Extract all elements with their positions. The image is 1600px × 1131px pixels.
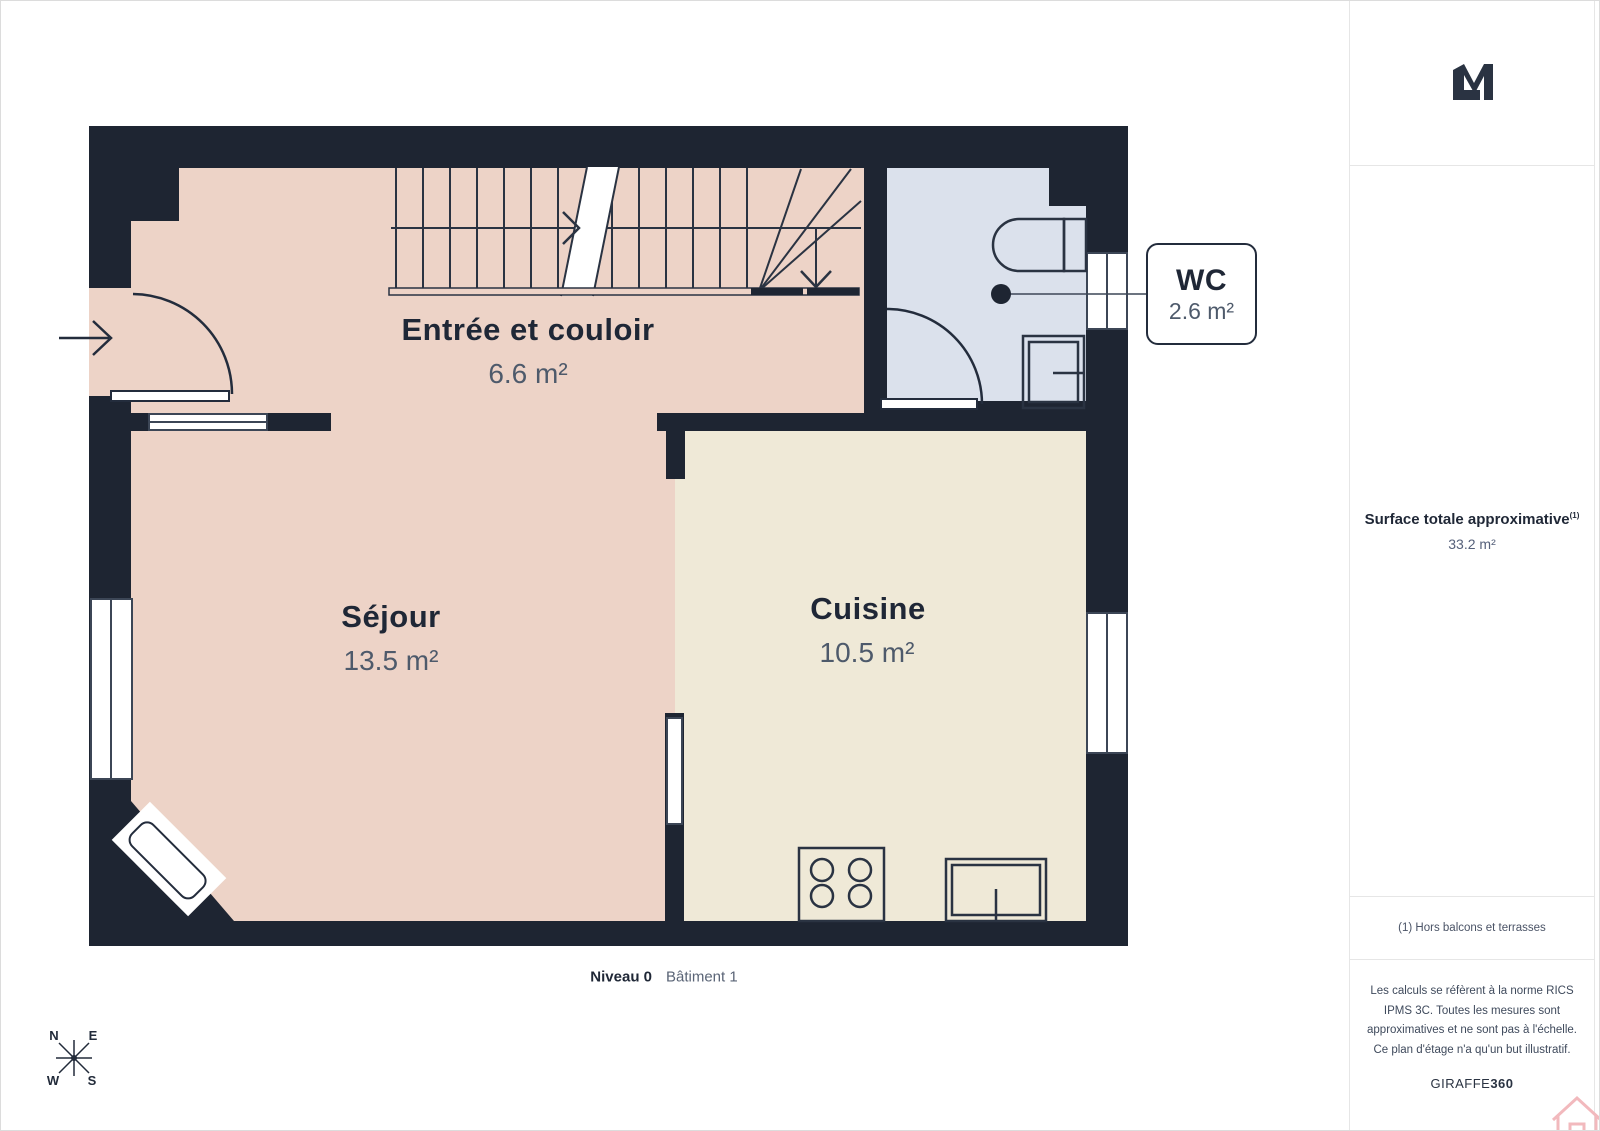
surface-total-label: Surface totale approximative(1) — [1365, 511, 1580, 528]
window-cuisine-right — [1087, 613, 1127, 753]
window-wc-right — [1087, 253, 1127, 329]
disclaimer-text: Les calculs se réfèrent à la norme RICS … — [1350, 960, 1594, 1060]
footnote-text: (1) Hors balcons et terrasses — [1398, 922, 1546, 934]
room-area-sejour: 13.5 m² — [344, 645, 439, 677]
surface-total-value: 33.2 m² — [1448, 536, 1495, 552]
entry-opening — [89, 288, 131, 396]
house-watermark-icon — [1549, 1090, 1600, 1131]
level-name: Niveau 0 — [590, 969, 652, 986]
room-label-cuisine: Cuisine — [810, 591, 925, 627]
compass-s: S — [88, 1073, 97, 1088]
surface-footnote-marker: (1) — [1570, 511, 1580, 520]
stair-handrail-1 — [751, 288, 803, 295]
floorplan-drawing — [1, 1, 1349, 1131]
building-name: Bâtiment 1 — [666, 969, 738, 986]
floorplan-page: Entrée et couloir 6.6 m² Séjour 13.5 m² … — [0, 0, 1600, 1131]
surface-section: Surface totale approximative(1) 33.2 m² — [1350, 166, 1594, 897]
logo-section — [1350, 1, 1594, 166]
interior-window-sejour-cuisine — [667, 718, 682, 824]
room-label-sejour: Séjour — [341, 599, 440, 635]
wc-label-callout: WC 2.6 m² — [1146, 243, 1257, 345]
floorplan-canvas: Entrée et couloir 6.6 m² Séjour 13.5 m² … — [1, 1, 1349, 1131]
room-area-entree: 6.6 m² — [488, 358, 567, 390]
stair-handrail-2 — [807, 288, 859, 295]
footnote-section: (1) Hors balcons et terrasses — [1350, 897, 1594, 960]
interior-window-entree-sejour — [149, 414, 267, 430]
info-sidebar: Surface totale approximative(1) 33.2 m² … — [1349, 1, 1595, 1131]
room-name: Entrée et couloir — [401, 312, 654, 348]
compass-n: N — [49, 1028, 58, 1043]
compass-rose-icon: N E W S — [37, 1019, 113, 1095]
compass-e: E — [89, 1028, 98, 1043]
room-area-cuisine: 10.5 m² — [820, 637, 915, 669]
lm-monogram-logo — [1448, 62, 1496, 104]
brand-wordmark: GIRAFFE360 — [1350, 1076, 1594, 1091]
level-caption: Niveau 0Bâtiment 1 — [590, 969, 737, 986]
wc-label-anchor-dot — [991, 284, 1011, 304]
room-label-entree: Entrée et couloir — [401, 312, 654, 348]
window-sejour-left — [91, 599, 132, 779]
compass-w: W — [47, 1073, 60, 1088]
